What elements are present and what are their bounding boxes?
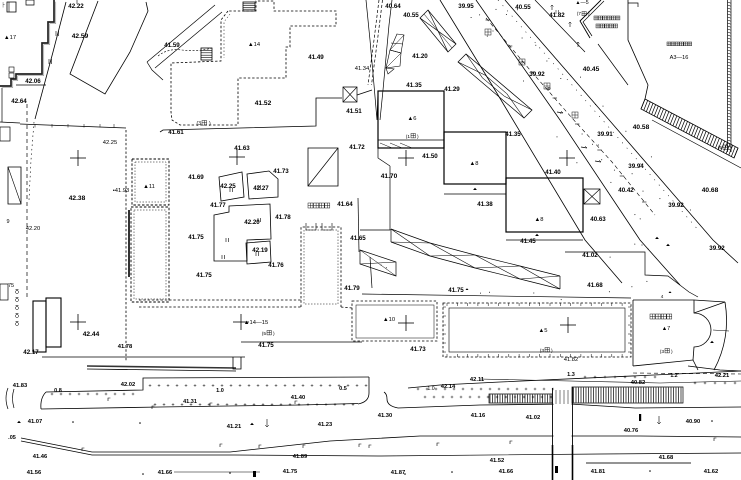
svg-text:41.07: 41.07 (28, 419, 43, 425)
svg-text:0.5: 0.5 (339, 386, 347, 392)
svg-text:42.25: 42.25 (103, 140, 118, 146)
svg-text:(5: (5 (718, 145, 723, 151)
svg-text:42.11: 42.11 (470, 377, 485, 383)
svg-text:40.45: 40.45 (583, 66, 600, 73)
svg-text:41.79: 41.79 (344, 285, 360, 292)
svg-text:41.75: 41.75 (196, 272, 212, 279)
svg-text:42.20: 42.20 (244, 219, 260, 226)
svg-text:▲8: ▲8 (535, 217, 544, 223)
svg-text:41.35: 41.35 (406, 82, 422, 89)
svg-text:▲14: ▲14 (248, 42, 261, 48)
svg-text:41.83: 41.83 (13, 383, 28, 389)
svg-text:41.69: 41.69 (188, 174, 204, 181)
svg-text:41.68: 41.68 (587, 282, 603, 289)
svg-text:(1: (1 (406, 134, 411, 140)
svg-text:41.02: 41.02 (582, 252, 598, 259)
svg-text:41.23: 41.23 (318, 422, 333, 428)
svg-text:41.61: 41.61 (168, 129, 184, 136)
svg-text:39.92: 39.92 (709, 245, 725, 252)
svg-text:41.73: 41.73 (273, 168, 289, 175)
svg-text:41.89: 41.89 (293, 454, 308, 460)
svg-text:41.30: 41.30 (378, 413, 393, 419)
svg-text:39.94: 39.94 (628, 163, 644, 170)
svg-text:41.38: 41.38 (477, 201, 493, 208)
svg-text:39.91: 39.91 (597, 131, 613, 138)
svg-text:41.75: 41.75 (188, 234, 204, 241)
svg-text:(3: (3 (660, 349, 665, 355)
svg-text:41.75: 41.75 (283, 469, 298, 475)
svg-text:▲8: ▲8 (470, 161, 479, 167)
svg-text:▲10: ▲10 (383, 317, 395, 323)
svg-text:p: p (547, 86, 550, 92)
svg-text:A3—16: A3—16 (670, 55, 689, 61)
svg-text:41.78: 41.78 (118, 344, 133, 350)
svg-text:41.40: 41.40 (545, 169, 561, 176)
svg-text:40.42: 40.42 (618, 187, 634, 194)
svg-text:41.21: 41.21 (227, 424, 242, 430)
svg-text:39.95: 39.95 (458, 3, 474, 10)
svg-text:42.64: 42.64 (11, 98, 27, 105)
svg-text:(3: (3 (197, 121, 202, 127)
svg-text:42.21: 42.21 (715, 373, 730, 379)
svg-text:▲5: ▲5 (539, 328, 548, 334)
svg-text:(3: (3 (540, 348, 545, 354)
svg-text:41.82: 41.82 (549, 12, 565, 19)
svg-text:41.31: 41.31 (183, 399, 197, 405)
svg-text:41.66: 41.66 (158, 470, 173, 476)
svg-text:42.27: 42.27 (253, 185, 269, 192)
svg-text:42.38: 42.38 (69, 195, 86, 202)
svg-text:41.62: 41.62 (704, 469, 719, 475)
svg-text:75: 75 (8, 283, 14, 289)
svg-text:41.78: 41.78 (275, 214, 291, 221)
svg-text:41.59: 41.59 (164, 42, 180, 49)
svg-text:42.44: 42.44 (83, 331, 100, 338)
svg-text:41.65: 41.65 (350, 235, 366, 242)
svg-text:41.76: 41.76 (268, 262, 284, 269)
svg-text:41.52: 41.52 (255, 100, 272, 107)
svg-text:41.50: 41.50 (422, 153, 438, 160)
svg-text:41.52: 41.52 (490, 458, 505, 464)
svg-text:4: 4 (661, 294, 664, 299)
svg-text:42.17: 42.17 (23, 349, 39, 356)
svg-text:41.66: 41.66 (499, 469, 514, 475)
svg-text:41.51: 41.51 (346, 108, 362, 115)
svg-text:41.20: 41.20 (412, 53, 428, 60)
svg-text:41.49: 41.49 (308, 54, 324, 61)
svg-text:▲—5: ▲—5 (575, 0, 588, 6)
svg-text:▲7: ▲7 (662, 326, 671, 332)
svg-text:1.0: 1.0 (427, 386, 434, 392)
svg-text:•41.93: •41.93 (113, 188, 130, 194)
svg-text:41.40: 41.40 (291, 395, 306, 401)
svg-text:(5: (5 (262, 331, 267, 337)
svg-text:40.58: 40.58 (633, 124, 650, 131)
svg-text:40.55: 40.55 (403, 12, 419, 19)
svg-text:42.19: 42.19 (252, 247, 268, 254)
svg-text:42.20: 42.20 (26, 226, 41, 232)
svg-text:41.56: 41.56 (27, 470, 42, 476)
svg-text:39.92: 39.92 (668, 202, 684, 209)
svg-text:41.72: 41.72 (349, 144, 365, 151)
svg-text:1.3: 1.3 (567, 372, 575, 378)
svg-text:.05: .05 (8, 435, 16, 441)
svg-text:0.8: 0.8 (54, 388, 62, 394)
svg-text:42.22: 42.22 (68, 3, 84, 10)
svg-text:41.81: 41.81 (591, 469, 606, 475)
svg-text:41.16: 41.16 (471, 413, 486, 419)
svg-text:42.25: 42.25 (220, 183, 236, 190)
svg-text:▲17: ▲17 (4, 35, 16, 41)
svg-text:40.55: 40.55 (515, 4, 531, 11)
svg-text:41.45: 41.45 (520, 238, 536, 245)
svg-text:41.73: 41.73 (410, 346, 426, 353)
svg-text:41.77: 41.77 (210, 202, 226, 209)
svg-text:41.02: 41.02 (526, 415, 541, 421)
svg-text:40.64: 40.64 (385, 3, 401, 10)
svg-text:41.46: 41.46 (33, 454, 48, 460)
svg-text:40.63: 40.63 (590, 216, 606, 223)
svg-text:▲11: ▲11 (143, 184, 155, 190)
svg-text:39.92: 39.92 (529, 71, 545, 78)
svg-text:41.75: 41.75 (448, 287, 464, 294)
svg-text:42.06: 42.06 (25, 78, 41, 85)
svg-text:▲14—15: ▲14—15 (244, 320, 268, 326)
svg-text:42.14: 42.14 (441, 384, 456, 390)
svg-text:41.35: 41.35 (505, 131, 521, 138)
svg-text:41.70: 41.70 (381, 173, 398, 180)
svg-text:41.75: 41.75 (258, 342, 274, 349)
svg-text:41.82: 41.82 (564, 357, 579, 363)
svg-text:▲6: ▲6 (408, 116, 417, 122)
svg-text:41.34: 41.34 (355, 66, 370, 72)
svg-text:41.29: 41.29 (444, 86, 460, 93)
svg-text:40.68: 40.68 (702, 187, 719, 194)
svg-text:42.59: 42.59 (72, 33, 89, 40)
svg-text:41.64: 41.64 (337, 201, 353, 208)
svg-text:40.82: 40.82 (631, 380, 646, 386)
svg-text:40.90: 40.90 (686, 419, 701, 425)
svg-text:(7: (7 (577, 11, 582, 16)
svg-text:1.0: 1.0 (216, 388, 224, 394)
svg-text:42.02: 42.02 (121, 382, 136, 388)
svg-text:9: 9 (6, 219, 9, 225)
svg-text:41.87: 41.87 (391, 470, 406, 476)
svg-text:41.68: 41.68 (659, 455, 674, 461)
svg-text:40.76: 40.76 (624, 428, 639, 434)
